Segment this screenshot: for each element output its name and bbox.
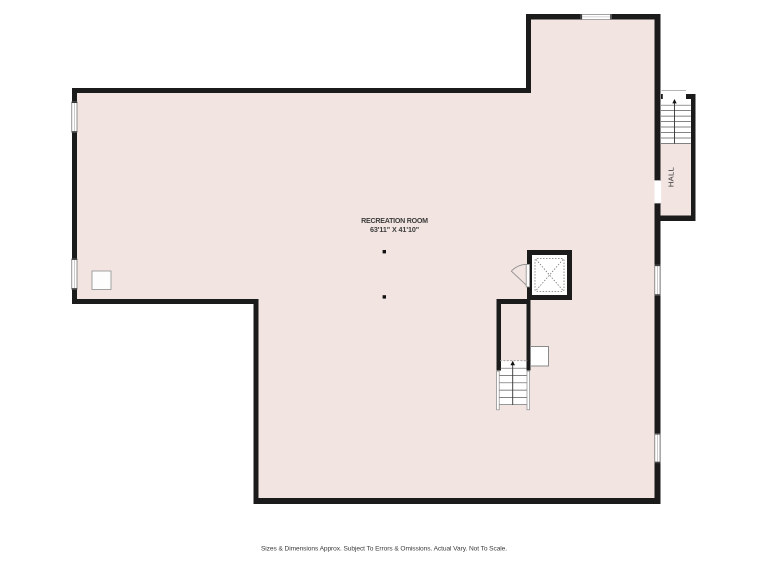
svg-text:RECREATION ROOM: RECREATION ROOM: [361, 217, 428, 225]
svg-text:Sizes & Dimensions Approx. Sub: Sizes & Dimensions Approx. Subject To Er…: [261, 545, 507, 552]
svg-text:HALL: HALL: [667, 167, 676, 187]
svg-text:63'11" X 41'10": 63'11" X 41'10": [370, 225, 419, 234]
